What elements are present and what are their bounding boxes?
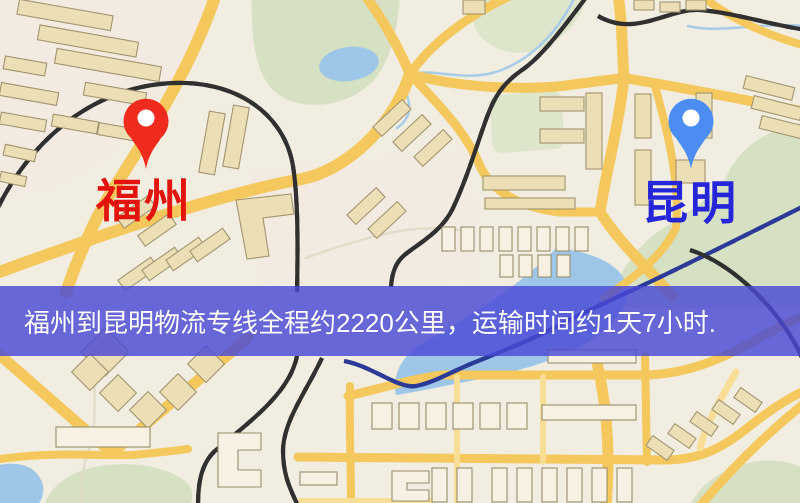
destination-pin-hole: [683, 110, 700, 127]
map-view: 福州 昆明 福州到昆明物流专线全程约2220公里，运输时间约1天7小时.: [0, 0, 800, 503]
origin-pin-hole: [138, 110, 155, 127]
destination-label: 昆明: [642, 178, 738, 229]
road: [0, 449, 188, 460]
road: [350, 386, 351, 503]
origin-label: 福州: [95, 176, 192, 227]
route-info-text: 福州到昆明物流专线全程约2220公里，运输时间约1天7小时.: [0, 303, 716, 340]
park-area: [44, 464, 192, 503]
map-base: [0, 0, 800, 503]
map-canvas[interactable]: 福州 昆明: [0, 0, 800, 503]
road: [700, 0, 800, 46]
water-area: [0, 464, 43, 503]
route-info-banner: 福州到昆明物流专线全程约2220公里，运输时间约1天7小时.: [0, 286, 800, 356]
